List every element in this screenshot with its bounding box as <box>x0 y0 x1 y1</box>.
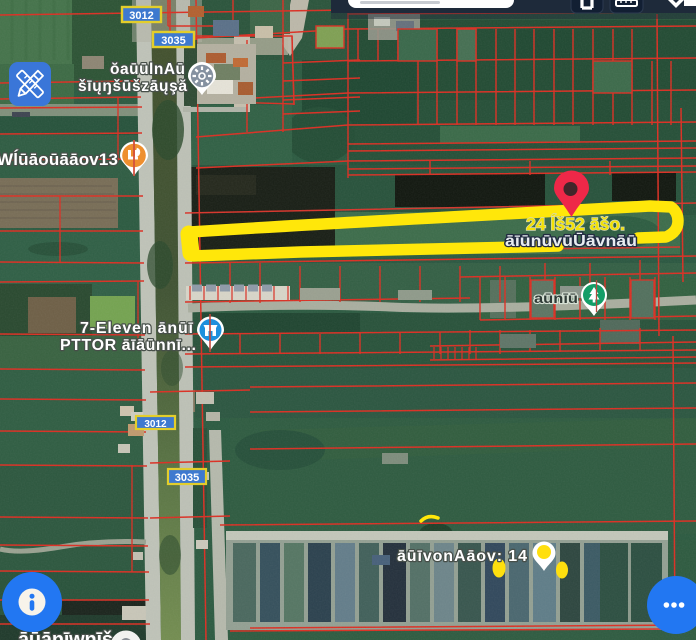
svg-text:3035: 3035 <box>175 472 199 484</box>
svg-text:PTTOR āīāūnnī...: PTTOR āīāūnnī... <box>60 337 196 354</box>
svg-text:3012: 3012 <box>144 419 167 430</box>
svg-text:3012: 3012 <box>129 10 153 22</box>
svg-text:24 ĺš52 āšo.: 24 ĺš52 āšo. <box>526 213 625 234</box>
svg-text:ŏaūūlnAū: ŏaūūlnAū <box>110 61 185 78</box>
svg-text:aūnīū: aūnīū <box>534 291 578 306</box>
svg-text:āūīvonAāov: 14: āūīvonAāov: 14 <box>397 548 527 565</box>
svg-text:āīūnūvūŪāvnāū: āīūnūvūŪāvnāū <box>505 233 637 250</box>
svg-text:3035: 3035 <box>161 35 185 47</box>
svg-text:7-Eleven ānūī: 7-Eleven ānūī <box>80 320 194 337</box>
svg-text:Wĺūāoūāāov13: Wĺūāoūāāov13 <box>0 149 118 169</box>
svg-text:šīųŋšūšzāųşă: šīųŋšūšzāųşă <box>78 78 187 95</box>
